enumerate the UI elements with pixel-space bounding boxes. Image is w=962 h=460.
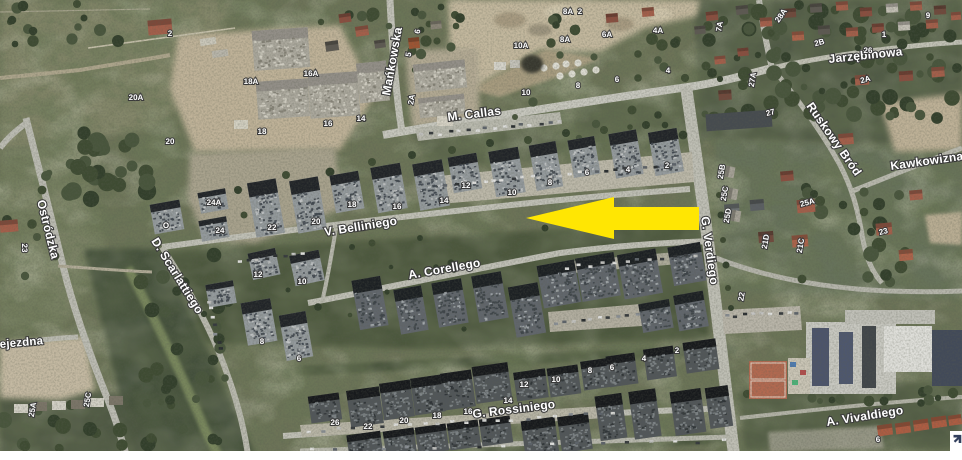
- svg-text:8A: 8A: [560, 35, 570, 44]
- svg-text:20: 20: [166, 137, 175, 146]
- svg-text:10A: 10A: [514, 41, 529, 50]
- svg-text:22: 22: [268, 223, 277, 232]
- svg-text:16: 16: [324, 119, 333, 128]
- svg-text:2A: 2A: [406, 94, 417, 106]
- svg-text:8: 8: [260, 337, 265, 346]
- svg-text:6: 6: [615, 75, 620, 84]
- svg-text:10: 10: [522, 88, 531, 97]
- svg-text:6: 6: [297, 354, 302, 363]
- svg-text:12: 12: [254, 270, 263, 279]
- svg-text:8: 8: [548, 178, 553, 187]
- svg-text:12: 12: [520, 380, 529, 389]
- svg-text:8: 8: [588, 366, 593, 375]
- svg-text:18: 18: [258, 127, 267, 136]
- svg-text:10: 10: [508, 188, 517, 197]
- svg-text:6: 6: [876, 435, 881, 444]
- svg-text:14: 14: [357, 114, 366, 123]
- svg-text:10: 10: [298, 277, 307, 286]
- svg-text:20: 20: [312, 217, 321, 226]
- svg-text:2: 2: [675, 346, 680, 355]
- svg-text:6: 6: [585, 168, 590, 177]
- svg-text:10: 10: [552, 375, 561, 384]
- svg-text:4: 4: [626, 165, 631, 174]
- svg-text:26: 26: [331, 418, 340, 427]
- svg-text:20A: 20A: [129, 93, 144, 102]
- svg-text:7A: 7A: [714, 21, 725, 33]
- svg-text:O: O: [163, 221, 169, 230]
- svg-text:14: 14: [504, 396, 513, 405]
- svg-text:12: 12: [462, 181, 471, 190]
- svg-text:14: 14: [440, 196, 449, 205]
- svg-text:22: 22: [364, 422, 373, 431]
- svg-text:9: 9: [926, 11, 931, 20]
- svg-text:18: 18: [433, 411, 442, 420]
- svg-text:16A: 16A: [304, 69, 319, 78]
- svg-text:18A: 18A: [244, 77, 259, 86]
- svg-text:23: 23: [20, 244, 29, 253]
- svg-text:16: 16: [464, 407, 473, 416]
- svg-text:8: 8: [576, 81, 581, 90]
- svg-text:26: 26: [864, 46, 873, 55]
- svg-text:4A: 4A: [653, 26, 663, 35]
- svg-text:4: 4: [642, 354, 647, 363]
- svg-text:2: 2: [665, 161, 670, 170]
- svg-text:18: 18: [348, 200, 357, 209]
- svg-text:1: 1: [882, 30, 887, 39]
- svg-text:24A: 24A: [207, 198, 222, 207]
- svg-text:2: 2: [168, 29, 173, 38]
- svg-text:24: 24: [216, 226, 225, 235]
- svg-text:2: 2: [578, 7, 583, 16]
- svg-text:16: 16: [393, 202, 402, 211]
- svg-text:20: 20: [400, 416, 409, 425]
- svg-text:6A: 6A: [602, 30, 612, 39]
- svg-text:8A: 8A: [563, 7, 573, 16]
- svg-text:6: 6: [610, 363, 615, 372]
- svg-text:4: 4: [666, 66, 671, 75]
